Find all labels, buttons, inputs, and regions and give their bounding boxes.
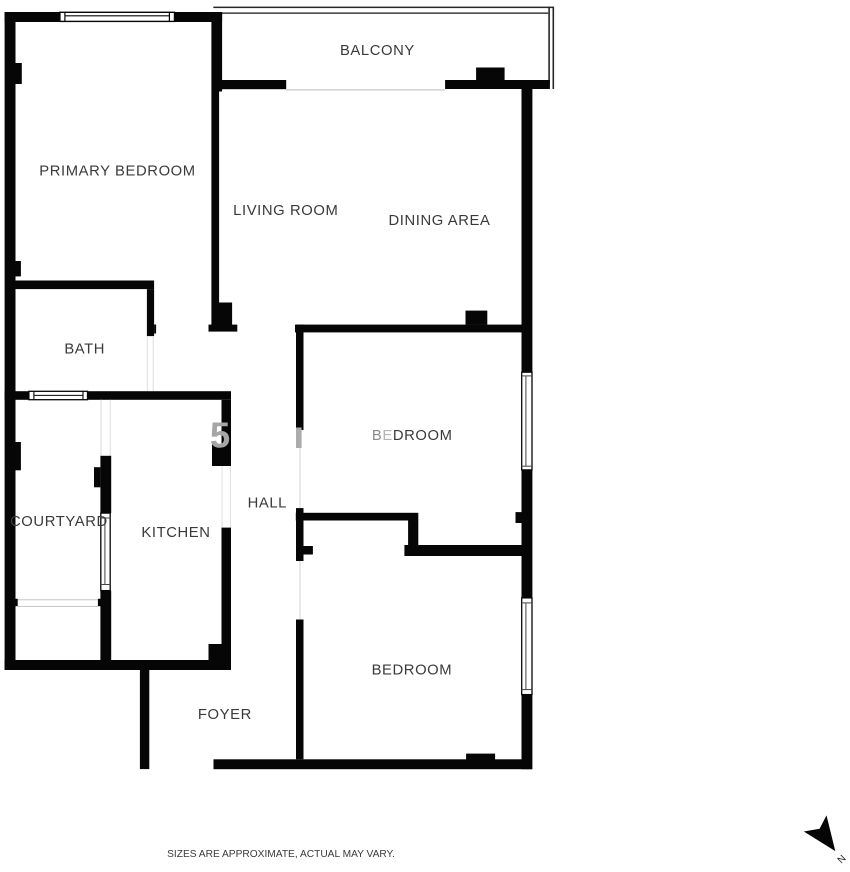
svg-text:HALL: HALL [248, 496, 287, 512]
svg-text:BEDROOM: BEDROOM [372, 428, 453, 444]
svg-text:SIZES ARE APPROXIMATE, ACTUAL: SIZES ARE APPROXIMATE, ACTUAL MAY VARY. [167, 849, 395, 860]
svg-text:COURTYARD: COURTYARD [10, 514, 108, 530]
svg-text:PRIMARY BEDROOM: PRIMARY BEDROOM [39, 164, 195, 180]
svg-text:LIVING ROOM: LIVING ROOM [233, 203, 338, 219]
svg-text:BALCONY: BALCONY [340, 43, 415, 59]
svg-text:FOYER: FOYER [198, 707, 252, 723]
svg-text:KITCHEN: KITCHEN [141, 525, 210, 541]
svg-text:BEDROOM: BEDROOM [372, 662, 453, 678]
svg-text:DINING AREA: DINING AREA [389, 213, 491, 229]
svg-text:BATH: BATH [64, 341, 105, 357]
svg-text:5: 5 [210, 414, 230, 455]
